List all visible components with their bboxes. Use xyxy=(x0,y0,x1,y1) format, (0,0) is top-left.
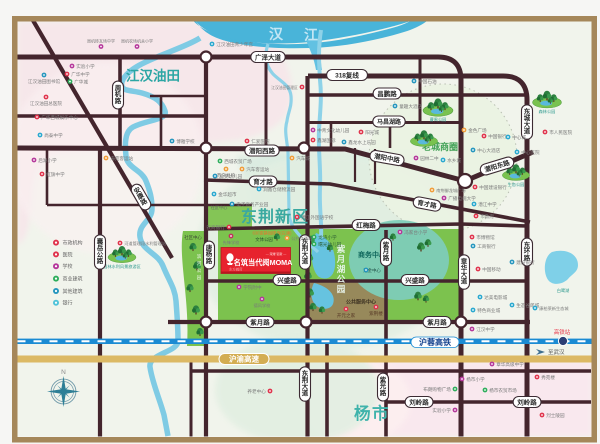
svg-text:医院: 医院 xyxy=(63,251,73,258)
svg-text:杨市农贸市场: 杨市农贸市场 xyxy=(489,387,517,394)
svg-text:电子商务产业园: 电子商务产业园 xyxy=(236,201,269,208)
svg-text:鑫龙水上乐园: 鑫龙水上乐园 xyxy=(348,139,376,146)
svg-text:童趣大酒店: 童趣大酒店 xyxy=(399,103,422,110)
svg-text:公共服务中心: 公共服务中心 xyxy=(346,299,376,306)
svg-text:兴盛路: 兴盛路 xyxy=(277,275,297,284)
svg-text:江汉油田: 江汉油田 xyxy=(126,68,180,84)
svg-text:布朗购物广场: 布朗购物广场 xyxy=(423,386,451,393)
svg-text:刘岭路: 刘岭路 xyxy=(409,397,429,406)
svg-text:紫荆楼: 紫荆楼 xyxy=(369,310,383,317)
svg-text:中国银行: 中国银行 xyxy=(488,133,507,140)
svg-text:水乡城: 水乡城 xyxy=(447,157,461,164)
svg-text:唐杨路: 唐杨路 xyxy=(206,243,213,265)
svg-text:广华西城娱乐中心: 广华西城娱乐中心 xyxy=(41,114,78,121)
svg-text:沪渝高速: 沪渝高速 xyxy=(229,354,259,364)
svg-text:汽车客运站: 汽车客运站 xyxy=(246,166,269,173)
svg-text:市政府: 市政府 xyxy=(480,213,494,220)
svg-text:广华城: 广华城 xyxy=(74,78,88,85)
svg-text:中青文化幼儿园: 中青文化幼儿园 xyxy=(317,127,350,134)
svg-text:兴盛路: 兴盛路 xyxy=(405,275,425,284)
svg-text:冯家台小学: 冯家台小学 xyxy=(404,229,427,236)
svg-text:实验小学: 实验小学 xyxy=(76,63,95,70)
svg-text:市人民医院: 市人民医院 xyxy=(549,129,572,136)
svg-text:白鹭湖: 白鹭湖 xyxy=(557,287,570,294)
svg-text:学院附中: 学院附中 xyxy=(243,284,262,291)
svg-text:社区中心: 社区中心 xyxy=(184,234,202,241)
svg-text:东方樾府: 东方樾府 xyxy=(229,267,243,272)
svg-text:中国石油: 中国石油 xyxy=(418,78,437,85)
svg-text:阳光城: 阳光城 xyxy=(365,129,379,136)
svg-text:实验小学: 实验小学 xyxy=(432,407,451,414)
svg-text:农商银行: 农商银行 xyxy=(206,224,225,231)
svg-text:江汉油田图书馆: 江汉油田图书馆 xyxy=(28,78,61,85)
svg-text:潜江外国语学校: 潜江外国语学校 xyxy=(301,214,334,221)
svg-text:东荆大道: 东荆大道 xyxy=(302,369,309,398)
svg-text:潜江中学: 潜江中学 xyxy=(478,201,497,208)
svg-text:烈士陵园: 烈士陵园 xyxy=(546,412,565,419)
svg-text:育才路: 育才路 xyxy=(253,177,273,186)
svg-text:市政机构: 市政机构 xyxy=(63,240,83,247)
svg-text:先锋学校: 先锋学校 xyxy=(223,239,241,246)
svg-text:公共交通站: 公共交通站 xyxy=(291,235,312,242)
svg-text:开元之家: 开元之家 xyxy=(337,312,356,319)
svg-text:建设银行: 建设银行 xyxy=(516,259,535,266)
svg-text:尚泰中学: 尚泰中学 xyxy=(44,132,63,139)
svg-text:特色商业城: 特色商业城 xyxy=(477,307,500,314)
svg-text:广播电视大学: 广播电视大学 xyxy=(448,195,476,202)
svg-text:金色广场: 金色广场 xyxy=(468,127,487,134)
svg-text:襄岳公路: 襄岳公路 xyxy=(96,237,104,266)
svg-text:章华大道: 章华大道 xyxy=(461,257,468,286)
svg-text:东环路: 东环路 xyxy=(524,240,531,262)
svg-text:龙湾小学: 龙湾小学 xyxy=(318,234,337,241)
svg-text:周机砖瓦场中学: 周机砖瓦场中学 xyxy=(87,38,115,44)
svg-text:汽车城: 汽车城 xyxy=(296,155,310,162)
svg-text:银行: 银行 xyxy=(63,300,73,307)
svg-text:刘岭路: 刘岭路 xyxy=(517,397,537,406)
svg-text:昌鹏路: 昌鹏路 xyxy=(377,89,397,98)
svg-text:德风学校: 德风学校 xyxy=(254,302,272,309)
svg-text:马昌湖路: 马昌湖路 xyxy=(377,118,402,126)
svg-text:高铁站: 高铁站 xyxy=(554,328,571,336)
svg-text:江汉油田管理区: 江汉油田管理区 xyxy=(271,85,298,90)
svg-text:中国建设银行: 中国建设银行 xyxy=(479,184,507,191)
svg-text:曹禺公园: 曹禺公园 xyxy=(430,116,447,123)
svg-text:N: N xyxy=(61,369,66,376)
svg-text:杨市: 杨市 xyxy=(354,403,390,423)
svg-text:章华高级中学: 章华高级中学 xyxy=(496,361,524,368)
svg-text:康柏莱新生态城: 康柏莱新生态城 xyxy=(539,305,569,312)
svg-text:达美电影城: 达美电影城 xyxy=(484,294,507,301)
svg-text:润鑫仓储物流园: 润鑫仓储物流园 xyxy=(263,186,296,193)
svg-text:广泽大道: 广泽大道 xyxy=(255,52,282,61)
svg-text:仁爱医院: 仁爱医院 xyxy=(251,138,270,145)
svg-text:紫光路: 紫光路 xyxy=(379,375,387,397)
svg-text:园林二中: 园林二中 xyxy=(420,155,439,162)
svg-text:森林公园: 森林公园 xyxy=(539,108,556,115)
svg-text:鑫湖国际: 鑫湖国际 xyxy=(317,137,336,144)
svg-text:东城大道: 东城大道 xyxy=(524,107,531,136)
svg-text:中心医院: 中心医院 xyxy=(521,149,540,156)
svg-text:文体公园: 文体公园 xyxy=(255,236,273,243)
svg-text:中心大酒店: 中心大酒店 xyxy=(477,147,500,154)
svg-text:广华中学: 广华中学 xyxy=(71,71,90,78)
svg-text:养老中心: 养老中心 xyxy=(247,388,266,395)
svg-text:中国移动: 中国移动 xyxy=(482,266,501,273)
svg-text:中心城: 中心城 xyxy=(512,134,526,141)
svg-text:— 荣耀 钜献 —: — 荣耀 钜献 — xyxy=(266,251,287,256)
svg-text:紫月湖公园: 紫月湖公园 xyxy=(336,244,346,294)
svg-text:后湖小学: 后湖小学 xyxy=(38,157,57,164)
svg-text:江: 江 xyxy=(304,27,318,43)
svg-text:社区中心: 社区中心 xyxy=(211,204,229,211)
svg-text:潜阳西路: 潜阳西路 xyxy=(249,146,276,155)
svg-text:江汉油田青少年宫: 江汉油田青少年宫 xyxy=(216,41,253,48)
svg-text:周机路: 周机路 xyxy=(115,83,122,105)
svg-text:周机农场机关小学: 周机农场机关小学 xyxy=(121,38,153,44)
svg-text:沪蓉高铁: 沪蓉高铁 xyxy=(419,337,451,347)
svg-text:曙光幼儿园: 曙光幼儿园 xyxy=(318,241,341,248)
svg-text:至武汉: 至武汉 xyxy=(548,348,565,356)
svg-text:园林水利风景旅游区: 园林水利风景旅游区 xyxy=(103,263,141,270)
svg-text:318复线: 318复线 xyxy=(335,70,359,79)
svg-text:南荆御龙城广场: 南荆御龙城广场 xyxy=(436,187,465,194)
svg-text:生态公园: 生态公园 xyxy=(508,181,525,188)
svg-text:红旗中学: 红旗中学 xyxy=(46,171,65,178)
svg-text:其他建筑: 其他建筑 xyxy=(63,288,83,295)
svg-text:市博物馆: 市博物馆 xyxy=(476,234,495,241)
svg-text:爱婴幼儿园: 爱婴幼儿园 xyxy=(219,173,242,180)
svg-text:秀苑楼: 秀苑楼 xyxy=(541,374,555,381)
svg-text:630亩静园楼盘(在建): 630亩静园楼盘(在建) xyxy=(252,230,292,237)
svg-text:河道管理段水利管理站: 河道管理段水利管理站 xyxy=(124,240,166,247)
svg-text:江汉中学: 江汉中学 xyxy=(476,326,495,333)
svg-text:博雅学校: 博雅学校 xyxy=(176,138,195,145)
svg-text:工商银行: 工商银行 xyxy=(477,243,496,250)
svg-text:名筑当代阅MOMA: 名筑当代阅MOMA xyxy=(234,258,293,267)
svg-text:商业建筑: 商业建筑 xyxy=(63,276,83,283)
svg-text:学校: 学校 xyxy=(63,263,73,270)
svg-text:紫月路: 紫月路 xyxy=(250,317,270,326)
svg-text:海苑客运站: 海苑客运站 xyxy=(110,155,133,162)
svg-text:杨市小学: 杨市小学 xyxy=(466,376,485,383)
svg-text:西城农贸广场: 西城农贸广场 xyxy=(224,158,252,165)
svg-text:汉: 汉 xyxy=(269,26,284,42)
svg-text:紫月路: 紫月路 xyxy=(427,317,447,326)
svg-text:江汉油田总医院: 江汉油田总医院 xyxy=(30,100,63,107)
svg-text:金华超市: 金华超市 xyxy=(218,191,237,198)
svg-text:紫月路: 紫月路 xyxy=(382,240,390,262)
svg-text:红梅路: 红梅路 xyxy=(356,220,376,229)
